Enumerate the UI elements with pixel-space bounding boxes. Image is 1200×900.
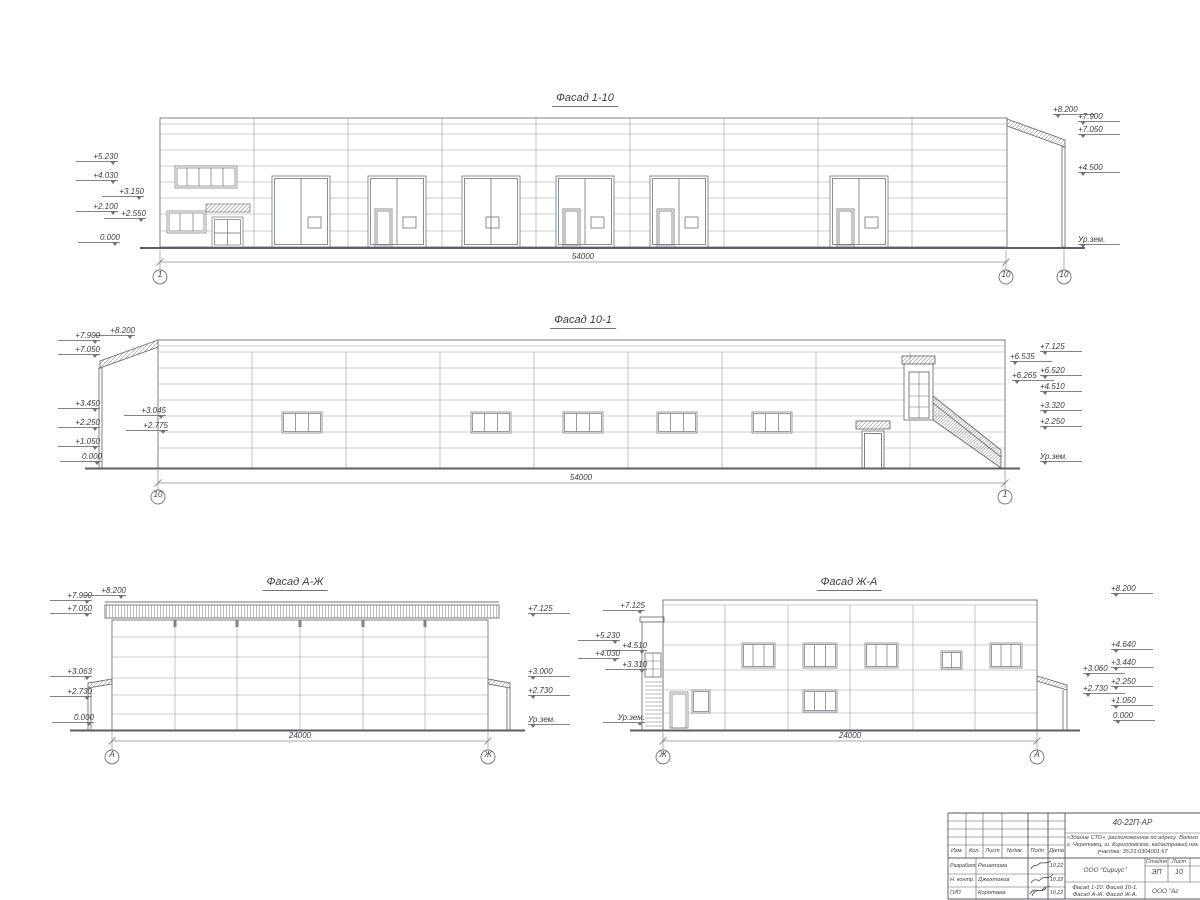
elevation-flag-icon [136,196,142,200]
elevation-flag-icon [84,696,90,700]
elevation-mark: +2.730 [50,687,92,697]
elevation-flag-icon [1042,461,1048,465]
elevation-flag-icon [1113,649,1119,653]
elevation-mark: +2.250 [1040,417,1082,427]
row-name: Решетова [978,863,1026,870]
stage-value: ЭП [1145,869,1168,877]
elevation-mark: +7.125 [603,601,645,611]
elevation-mark: 0.000 [60,452,102,462]
elevation-flag-icon [84,676,90,680]
elevation-mark: +3.045 [124,406,166,416]
elevation-flag-icon [1055,114,1061,118]
project-name-line1: «Здание СТО», расположенное по адресу: В… [1067,835,1198,841]
row-role: ГИП [950,890,976,896]
elevation-flag-icon [1042,426,1048,430]
elevation-flag-icon [1014,380,1020,384]
elevation-mark: Ур.зем. [1078,235,1120,245]
elevation-mark: Ур.зем. [528,715,570,725]
elevation-flag-icon [1113,705,1119,709]
elevation-flag-icon [637,722,643,726]
elevation-flag-icon [1113,593,1119,597]
elevation-flag-icon [86,722,92,726]
elevation-flag-icon [1115,720,1121,724]
elevation-flag-icon [112,242,118,246]
elevation-mark: +7.900 [58,331,100,341]
elevation-flag-icon [530,613,536,617]
drawing-sheet: Фасад 1-10 Фасад 10-1 Фасад А-Ж Фасад Ж-… [0,0,1200,900]
elevation-mark: +7.125 [528,604,570,614]
elevation-mark: +4.030 [76,171,118,181]
axis-label: Ж [480,750,496,764]
stage-label: Стадия [1145,859,1168,865]
elevation-mark: +4.510 [1040,382,1082,392]
elevation-flag-icon [84,613,90,617]
dimension-label: 54000 [572,252,594,261]
axis-label: 10 [998,270,1014,284]
col-header-list: Лист [983,848,1002,854]
axis-label: 1 [152,270,168,284]
elevation-mark: +4.030 [578,649,620,659]
elevation-mark: +5.230 [76,152,118,162]
facade-10-1-drawing [85,340,1020,504]
elevation-flag-icon [138,218,144,222]
elevation-mark: +3.450 [58,399,100,409]
elevation-mark: +7.050 [58,345,100,355]
elevation-flag-icon [1012,361,1018,365]
elevation-flag-icon [92,427,98,431]
elevation-mark: +2.550 [104,209,146,219]
elevation-mark: +4.500 [1078,163,1120,173]
elevation-flag-icon [639,669,645,673]
sheet-content-line1: Фасад 1-10. Фасад 10-1. [1065,885,1145,892]
org-name: ООО "Сириус" [1065,867,1145,874]
elevation-flag-icon [92,354,98,358]
elevation-mark: +3.063 [50,667,92,677]
elevation-flag-icon [110,161,116,165]
elevation-mark: +3.310 [605,660,647,670]
col-header-podp: Подп. [1028,848,1048,854]
elevation-flag-icon [530,724,536,728]
facade-1-10-drawing [140,118,1085,284]
elevation-mark: +1.050 [58,437,100,447]
elevation-flag-icon [1042,410,1048,414]
dimension-label: 54000 [570,473,592,482]
elevation-mark: 0.000 [1113,711,1155,721]
elevation-mark: +3.000 [528,667,570,677]
row-role: Н. контр. [950,877,976,883]
elevation-flag-icon [1080,244,1086,248]
elevation-flag-icon [639,650,645,654]
elevation-mark: +7.125 [1040,342,1082,352]
elevation-flag-icon [118,595,124,599]
doc-number: 40-22П-АР [1065,818,1200,827]
axis-label: 10 [150,490,166,504]
col-header-izm: Изм. [948,848,966,854]
sheet-value: 10 [1168,869,1190,877]
axis-label: А [104,750,120,764]
axis-label: А [1029,750,1045,764]
elevation-mark: +8.200 [1111,584,1153,594]
dimension-label: 24000 [839,731,861,740]
row-name: Коротаев [978,890,1026,897]
org2-name: ООО "Аг [1152,888,1200,895]
row-date: 10.22 [1048,863,1065,869]
elevation-mark: +3.320 [1040,401,1082,411]
elevation-mark: +2.730 [528,686,570,696]
col-header-ndok: №док. [1002,848,1028,854]
facade-title: Фасад 1-10 [552,92,618,107]
elevation-mark: +6.265 [1012,371,1054,381]
axis-label: 1 [997,490,1013,504]
row-role: Разработал [950,863,976,869]
elevation-mark: +3.150 [102,187,144,197]
elevation-mark: +2.250 [58,418,100,428]
elevation-flag-icon [94,461,100,465]
col-header-kol: Кол. [966,848,983,854]
sheet-label: Лист [1168,859,1190,865]
elevation-mark: +7.050 [50,604,92,614]
row-date: 10.22 [1048,890,1065,896]
elevation-flag-icon [1042,391,1048,395]
facade-title: Фасад А-Ж [263,576,328,591]
elevation-mark: +7.900 [50,591,92,601]
project-name-line3: участка: 35:21:0304001:67 [1067,849,1198,855]
project-name-line2: г. Череповец, ш. Кирилловское, кадастров… [1067,842,1198,848]
elevation-flag-icon [1080,172,1086,176]
elevation-flag-icon [1085,693,1091,697]
elevation-flag-icon [530,695,536,699]
elevation-mark: Ур.зем. [1040,452,1082,462]
dimension-label: 24000 [289,731,311,740]
elevation-flag-icon [637,610,643,614]
row-name: Джелтоков [978,877,1026,884]
facade-title: Фасад Ж-А [817,576,882,591]
elevation-flag-icon [127,335,133,339]
elevation-flag-icon [1085,673,1091,677]
elevation-flag-icon [530,676,536,680]
elevation-mark: +5.230 [578,631,620,641]
facade-title: Фасад 10-1 [550,314,616,329]
sheet-content-line2: Фасад А-Ж. Фасад Ж-А. [1065,892,1145,899]
elevation-flag-icon [158,415,164,419]
elevation-mark: +7.050 [1078,125,1120,135]
drawing-canvas [0,0,1200,900]
elevation-mark: +4.640 [1111,640,1153,650]
elevation-mark: +2.730 [1083,684,1125,694]
elevation-mark: +1.050 [1111,696,1153,706]
elevation-flag-icon [92,446,98,450]
elevation-mark: +6.535 [1010,352,1052,362]
axis-label: 10 [1056,270,1072,284]
elevation-mark: +2.775 [126,421,168,431]
elevation-flag-icon [1080,134,1086,138]
elevation-mark: +7.900 [1078,112,1120,122]
elevation-flag-icon [160,430,166,434]
elevation-flag-icon [92,340,98,344]
col-header-data: Дата [1048,848,1065,854]
elevation-mark: 0.000 [78,233,120,243]
elevation-mark: Ур.зем. [603,713,645,723]
axis-label: Ж [655,750,671,764]
elevation-flag-icon [110,180,116,184]
elevation-mark: +3.060 [1083,664,1125,674]
elevation-mark: 0.000 [52,713,94,723]
row-date: 10.22 [1048,877,1065,883]
elevation-flag-icon [92,408,98,412]
